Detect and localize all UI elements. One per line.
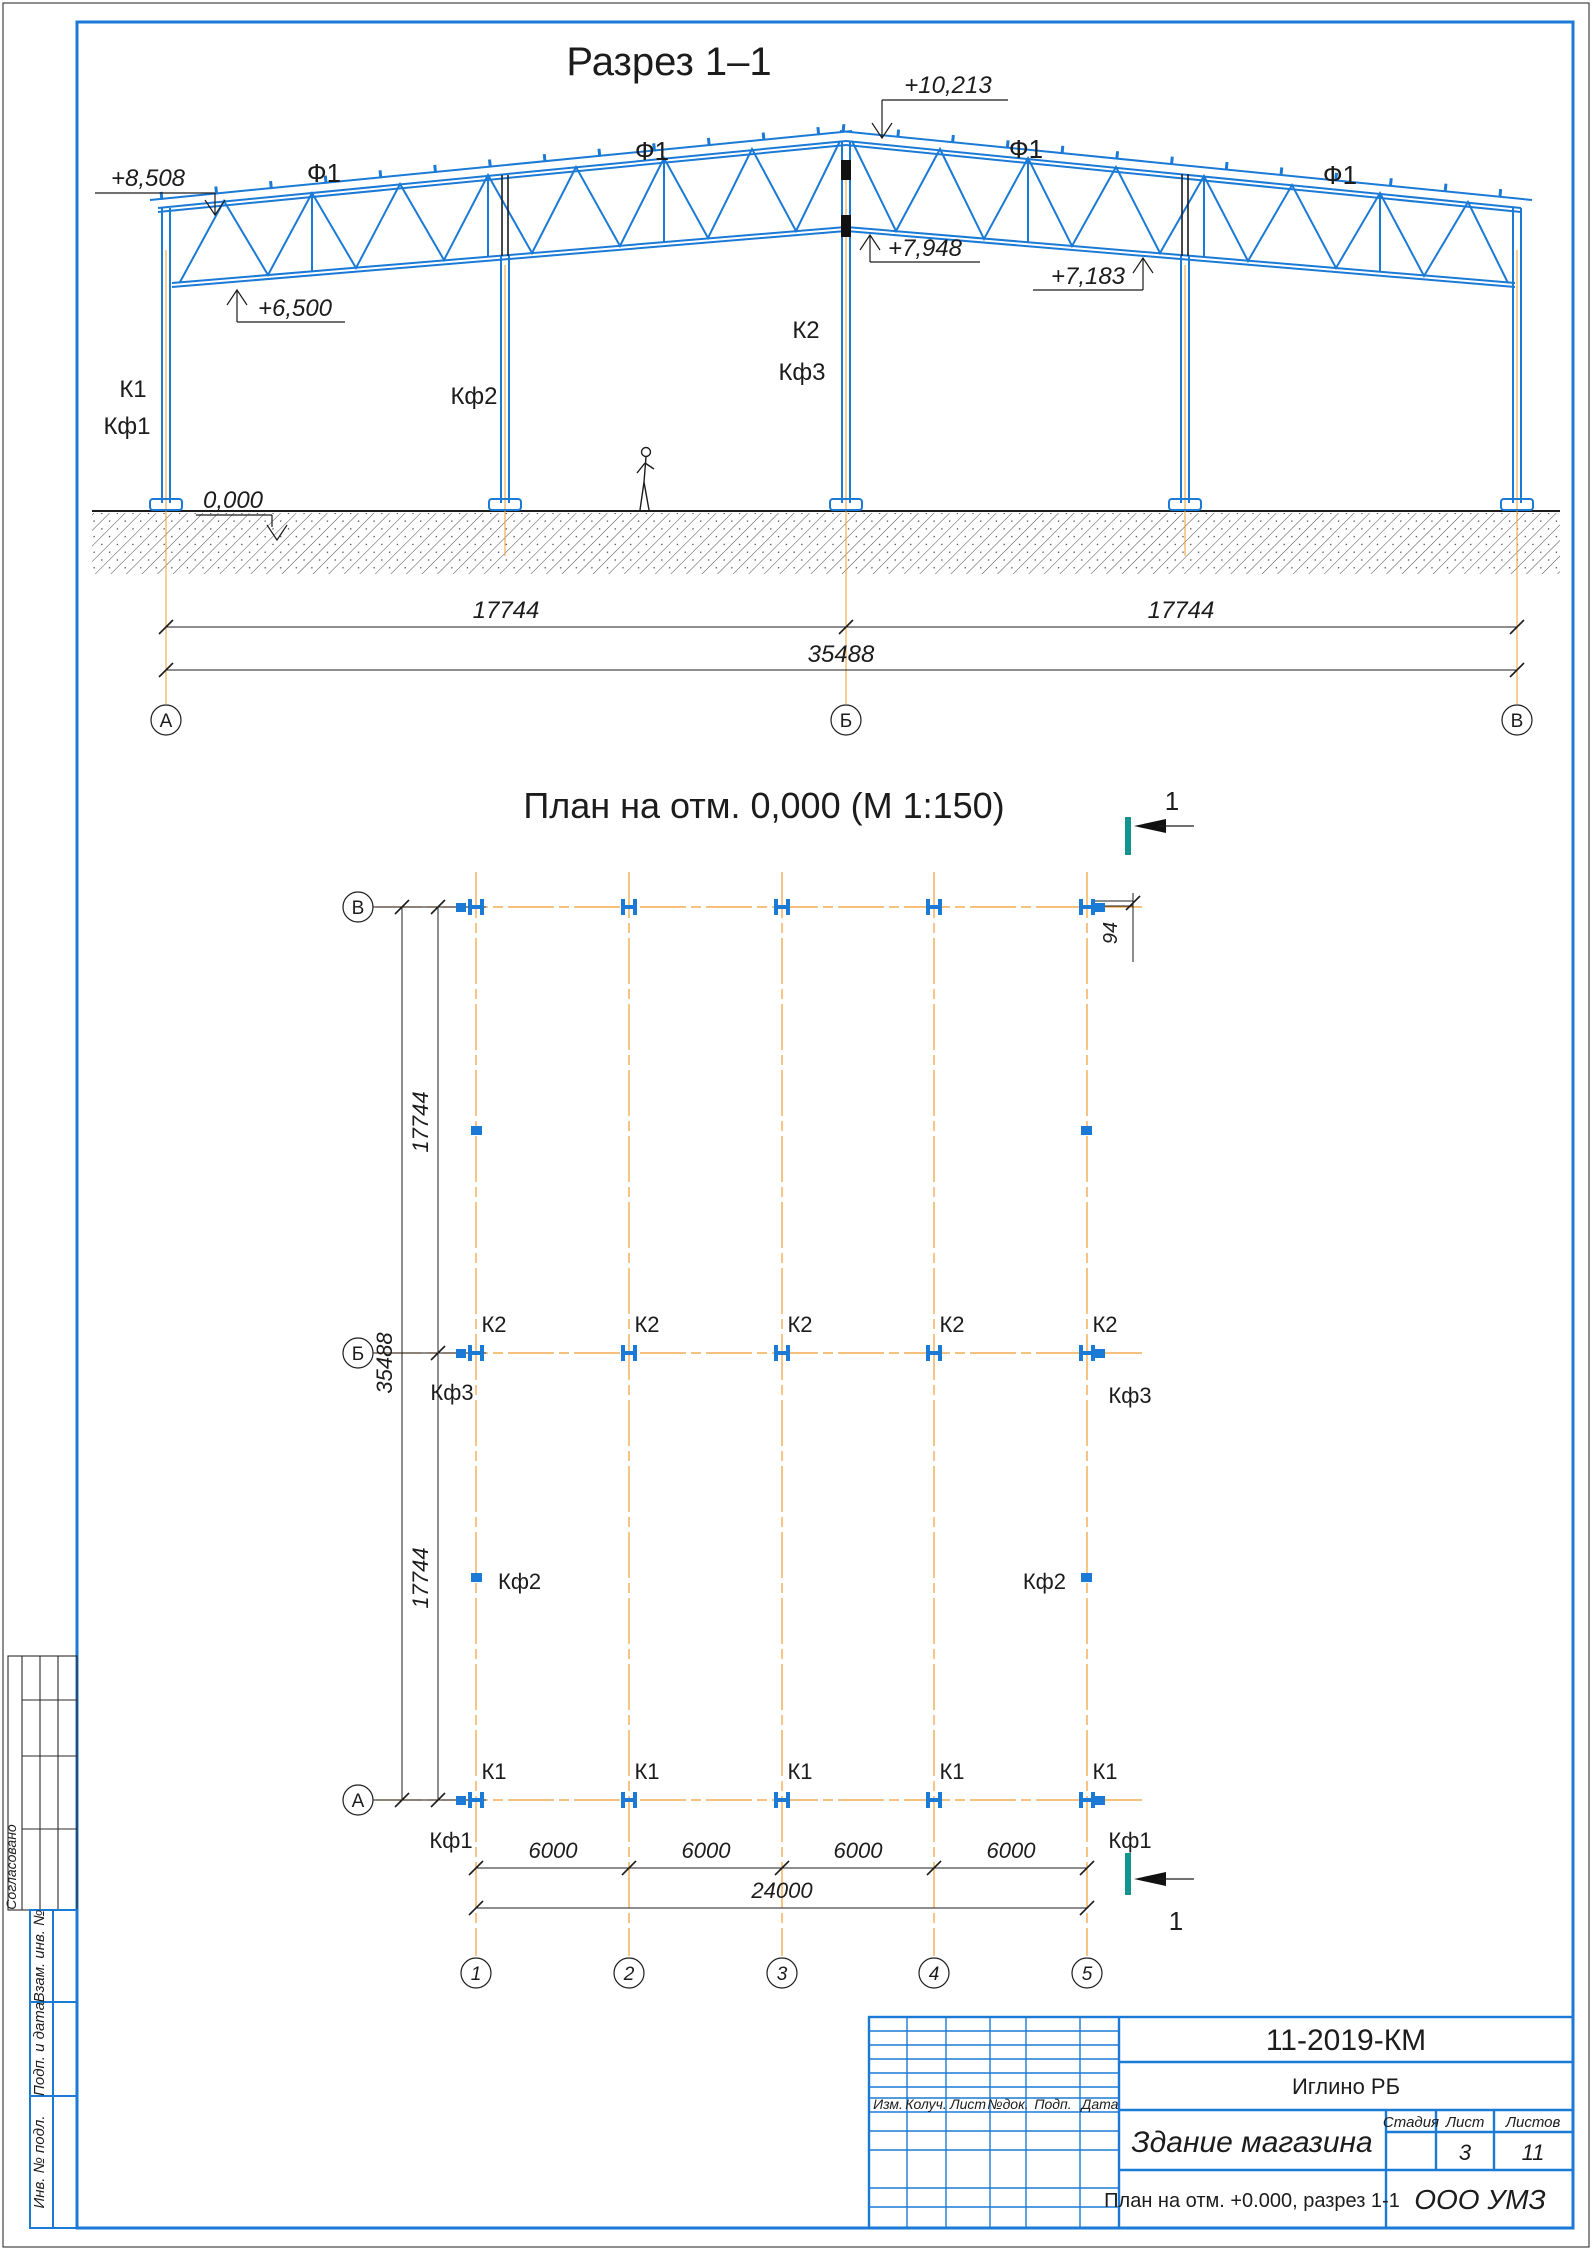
truss-label-3: Ф1 — [1009, 134, 1043, 164]
plan-dim-span-bottom: 17744 — [408, 1547, 433, 1608]
plan-title: План на отм. 0,000 (М 1:150) — [523, 785, 1004, 826]
label-kf3: Кф3 — [778, 359, 825, 386]
bay-total-dim: 24000 — [750, 1878, 813, 1903]
tb-sheets-label: Листов — [1505, 2114, 1561, 2131]
plan-kf1-right: Кф1 — [1108, 1828, 1151, 1853]
frame-border — [77, 22, 1573, 2228]
plan-row-b: Б — [352, 1344, 364, 1365]
dim-right: 17744 — [1148, 597, 1215, 624]
plan-dim-offset: 94 — [1100, 922, 1122, 944]
plan-row-v: В — [352, 898, 365, 919]
axis-a: А — [160, 711, 173, 732]
truss-label-4: Ф1 — [1323, 160, 1357, 190]
tb-col-data: Дата — [1080, 2096, 1119, 2112]
axis-b: Б — [840, 711, 852, 732]
person-figure — [637, 448, 654, 511]
plan-k1-1: К1 — [481, 1759, 506, 1784]
drawing-canvas: Разрез 1–1 — [0, 0, 1592, 2250]
ridge-splice-bottom — [841, 215, 851, 237]
plan-grid — [376, 872, 1142, 1956]
plan-k2-2: К2 — [634, 1312, 659, 1337]
tb-col-podp: Подп. — [1034, 2096, 1071, 2112]
label-k2: К2 — [792, 317, 819, 344]
dim-total: 35488 — [808, 641, 875, 668]
tb-sheets-value: 11 — [1522, 2140, 1545, 2165]
bay-dim-2: 6000 — [682, 1838, 732, 1863]
plan-kf2-left: Кф2 — [498, 1569, 541, 1594]
section-title: Разрез 1–1 — [566, 40, 771, 84]
elev-bottom-left: +6,500 — [258, 295, 333, 322]
sidebar-inv: Инв. № подл. — [31, 2115, 48, 2208]
tb-sheet-label: Лист — [1445, 2114, 1485, 2131]
elev-eave-left: +8,508 — [111, 165, 186, 192]
cut-mark-bottom: 1 — [1125, 1853, 1194, 1936]
plan-axis-5: 5 — [1082, 1964, 1093, 1985]
plan-axis-4: 4 — [929, 1964, 940, 1985]
cut-label-bottom: 1 — [1169, 1906, 1183, 1936]
plan-axis-1: 1 — [471, 1964, 482, 1985]
tb-col-koluch: Колуч. — [905, 2096, 947, 2112]
dim-left: 17744 — [473, 597, 540, 624]
plan-k2-5: К2 — [1092, 1312, 1117, 1337]
plan-dim-total: 35488 — [372, 1332, 397, 1394]
elev-bottom-right: +7,183 — [1051, 263, 1126, 290]
elev-ground: 0,000 — [203, 487, 264, 514]
sidebar-approved: Согласовано — [3, 1824, 19, 1910]
tb-company: ООО УМЗ — [1414, 2184, 1546, 2215]
tb-doc-number: 11-2019-КМ — [1266, 2024, 1426, 2057]
tb-col-izm: Изм. — [873, 2096, 903, 2112]
truss-label-1: Ф1 — [307, 158, 341, 188]
plan-k1-4: К1 — [939, 1759, 964, 1784]
tb-project: Здание магазина — [1131, 2126, 1372, 2159]
label-k1: К1 — [119, 376, 146, 403]
label-kf2: Кф2 — [450, 383, 497, 410]
plan-axis-2: 2 — [623, 1964, 635, 1985]
tb-sheet-value: 3 — [1459, 2140, 1472, 2165]
sidebar-podp: Подп. и дата — [31, 2002, 48, 2096]
tb-col-ndok: №док. — [987, 2096, 1028, 2112]
ground-hatch — [92, 513, 1560, 574]
plan-k1-2: К1 — [634, 1759, 659, 1784]
drawing-sheet: Разрез 1–1 — [0, 0, 1592, 2250]
plan-kf1-left: Кф1 — [429, 1828, 472, 1853]
cut-mark-top: 1 — [1125, 786, 1194, 855]
axis-v: В — [1511, 711, 1524, 732]
revision-table — [869, 2017, 1119, 2228]
section-view: Разрез 1–1 — [92, 40, 1560, 735]
plan-k2-4: К2 — [939, 1312, 964, 1337]
plan-k2-3: К2 — [787, 1312, 812, 1337]
cut-label-top: 1 — [1165, 786, 1179, 816]
sidebar-vzam: Взам. инв. № — [31, 1910, 48, 2003]
plan-axis-circles — [343, 892, 1102, 1988]
plan-view: План на отм. 0,000 (М 1:150) 1 1 — [343, 785, 1194, 1988]
tb-stage-label: Стадия — [1383, 2114, 1439, 2131]
tb-location: Иглино РБ — [1292, 2074, 1400, 2099]
elev-ridge: +10,213 — [904, 72, 992, 99]
tb-col-list: Лист — [949, 2096, 986, 2112]
plan-k2-1: К2 — [481, 1312, 506, 1337]
truss-label-2: Ф1 — [635, 136, 669, 166]
label-kf1: Кф1 — [103, 413, 150, 440]
title-block: Изм. Колуч. Лист №док. Подп. Дата 11-201… — [869, 2017, 1573, 2228]
tb-sheet-title: План на отм. +0.000, разрез 1-1 — [1104, 2190, 1400, 2212]
plan-kf3-left: Кф3 — [430, 1380, 473, 1405]
ridge-splice-top — [841, 160, 851, 180]
plan-row-a: А — [352, 1791, 365, 1812]
sidebar-stamps: Согласовано Взам. инв. № Подп. и дата Ин… — [3, 1656, 77, 2228]
bay-dim-4: 6000 — [987, 1838, 1037, 1863]
plan-k1-3: К1 — [787, 1759, 812, 1784]
plan-kf2-right: Кф2 — [1023, 1569, 1066, 1594]
bay-dim-1: 6000 — [529, 1838, 579, 1863]
plan-dim-span-top: 17744 — [408, 1091, 433, 1152]
plan-k1-5: К1 — [1092, 1759, 1117, 1784]
bay-dim-3: 6000 — [834, 1838, 884, 1863]
plan-axis-3: 3 — [777, 1964, 788, 1985]
elev-bottom-mid: +7,948 — [888, 235, 963, 262]
plan-kf3-right: Кф3 — [1108, 1383, 1151, 1408]
